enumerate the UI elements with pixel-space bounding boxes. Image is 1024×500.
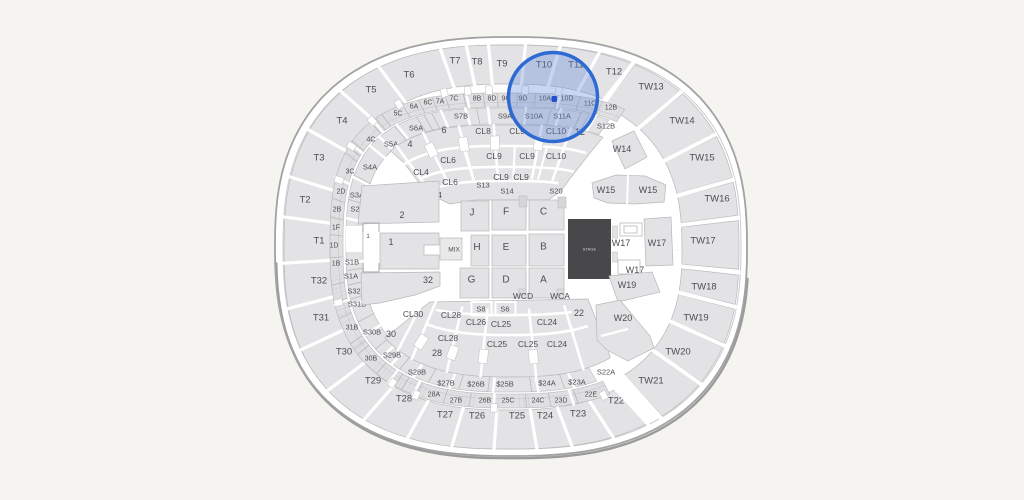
svg-text:TW15: TW15 [689,153,714,164]
svg-text:CL9: CL9 [486,151,502,161]
svg-text:W14: W14 [613,144,632,154]
svg-text:S6: S6 [500,305,509,314]
svg-text:S29B: S29B [383,351,401,360]
svg-text:W17: W17 [648,238,667,248]
svg-text:S4A: S4A [363,163,377,172]
svg-text:CL30: CL30 [403,309,424,319]
svg-text:30: 30 [386,329,396,339]
svg-text:25C: 25C [502,398,515,405]
svg-text:S20: S20 [549,187,562,196]
svg-text:W17: W17 [612,238,631,248]
svg-text:CL28: CL28 [438,333,459,343]
svg-text:$26B: $26B [467,380,485,389]
svg-text:T24: T24 [537,411,553,422]
svg-text:T6: T6 [403,70,414,81]
svg-text:T3: T3 [313,153,324,164]
svg-text:CL24: CL24 [547,339,568,349]
svg-text:CL4: CL4 [413,167,429,177]
svg-text:S13: S13 [476,181,489,190]
svg-text:CL6: CL6 [440,155,456,165]
svg-text:W15: W15 [639,185,658,195]
svg-text:T8: T8 [471,57,482,68]
svg-text:S2: S2 [350,205,359,214]
svg-text:E: E [503,242,510,253]
svg-text:S6A: S6A [409,124,423,133]
svg-text:TW18: TW18 [691,282,716,293]
svg-text:30B: 30B [365,356,378,363]
svg-text:S32: S32 [347,287,360,296]
svg-text:STAGE: STAGE [583,248,597,252]
svg-text:26B: 26B [479,398,492,405]
svg-text:T25: T25 [509,411,525,422]
svg-text:S8: S8 [476,305,485,314]
svg-text:S22A: S22A [597,368,615,377]
svg-text:CL9: CL9 [513,172,529,182]
svg-text:28: 28 [432,348,442,358]
svg-text:24C: 24C [532,398,545,405]
svg-text:CL25: CL25 [491,319,512,329]
svg-text:27B: 27B [450,398,463,405]
svg-text:W19: W19 [618,280,637,290]
svg-text:TW17: TW17 [690,236,715,247]
svg-text:F: F [503,207,509,218]
svg-text:T29: T29 [365,376,381,387]
svg-text:T4: T4 [336,116,347,127]
svg-text:CL10: CL10 [546,151,567,161]
svg-text:8B: 8B [473,96,482,103]
svg-text:7C: 7C [450,96,459,103]
svg-text:A: A [540,275,547,286]
svg-text:1: 1 [388,237,393,247]
svg-text:8D: 8D [488,96,497,103]
svg-text:T7: T7 [449,56,460,67]
svg-text:D: D [502,275,509,286]
svg-text:B: B [540,242,547,253]
svg-text:2: 2 [399,210,404,220]
svg-text:22E: 22E [585,392,598,399]
svg-text:J: J [470,208,475,219]
svg-text:W20: W20 [614,313,633,323]
svg-text:S14: S14 [500,187,513,196]
svg-text:31B: 31B [346,325,359,332]
svg-text:28A: 28A [428,392,441,399]
svg-text:S12B: S12B [597,122,615,131]
svg-text:TW14: TW14 [669,116,694,127]
svg-text:32: 32 [423,275,433,285]
svg-text:1F: 1F [332,225,340,232]
svg-text:T1: T1 [313,236,324,247]
svg-text:TW20: TW20 [665,347,690,358]
svg-text:T12: T12 [606,67,622,78]
svg-text:T26: T26 [469,411,485,422]
svg-text:H: H [473,242,480,253]
svg-text:CL8: CL8 [475,126,491,136]
svg-text:6A: 6A [410,104,419,111]
svg-text:7A: 7A [436,99,445,106]
svg-text:2B: 2B [333,207,342,214]
svg-text:CL28: CL28 [441,310,462,320]
svg-text:2D: 2D [337,189,346,196]
svg-text:CL9: CL9 [493,172,509,182]
svg-text:CL25: CL25 [518,339,539,349]
svg-text:TW21: TW21 [638,376,663,387]
svg-text:T28: T28 [396,394,412,405]
svg-text:6: 6 [441,125,446,135]
svg-text:T30: T30 [336,347,352,358]
svg-text:S28B: S28B [408,368,426,377]
svg-text:T23: T23 [570,409,586,420]
svg-text:T31: T31 [313,313,329,324]
svg-text:S30B: S30B [363,328,381,337]
svg-text:S1A: S1A [344,272,358,281]
svg-text:W15: W15 [597,185,616,195]
svg-text:C: C [540,207,547,218]
svg-text:22: 22 [574,308,584,318]
svg-text:T27: T27 [437,410,453,421]
svg-text:WCA: WCA [550,291,570,301]
svg-text:CL9: CL9 [519,151,535,161]
svg-text:CL6: CL6 [442,177,458,187]
svg-text:1B: 1B [332,261,341,268]
svg-text:CL25: CL25 [487,339,508,349]
svg-text:CL26: CL26 [466,317,487,327]
svg-text:TW19: TW19 [683,313,708,324]
svg-text:T9: T9 [496,59,507,70]
svg-text:$25B: $25B [496,380,514,389]
svg-text:CL24: CL24 [537,317,558,327]
svg-text:TW13: TW13 [638,82,663,93]
svg-text:3C: 3C [346,169,355,176]
svg-text:23D: 23D [555,398,568,405]
svg-text:1D: 1D [330,243,339,250]
svg-text:12B: 12B [605,105,618,112]
svg-text:G: G [468,275,476,286]
svg-text:MIX: MIX [448,247,460,254]
svg-text:TW16: TW16 [704,194,729,205]
svg-text:$23A: $23A [568,378,586,387]
svg-text:$24A: $24A [538,379,556,388]
svg-text:T2: T2 [299,195,310,206]
svg-text:4: 4 [407,139,412,149]
svg-text:5C: 5C [394,111,403,118]
svg-text:T5: T5 [365,85,376,96]
svg-text:T32: T32 [311,276,327,287]
svg-text:S7B: S7B [454,112,468,121]
svg-text:·· ·· ·· ··: ·· ·· ·· ·· [671,248,682,252]
svg-text:WCD: WCD [513,291,533,301]
svg-text:$27B: $27B [437,379,455,388]
svg-text:6C: 6C [424,100,433,107]
svg-text:S1B: S1B [345,258,359,267]
